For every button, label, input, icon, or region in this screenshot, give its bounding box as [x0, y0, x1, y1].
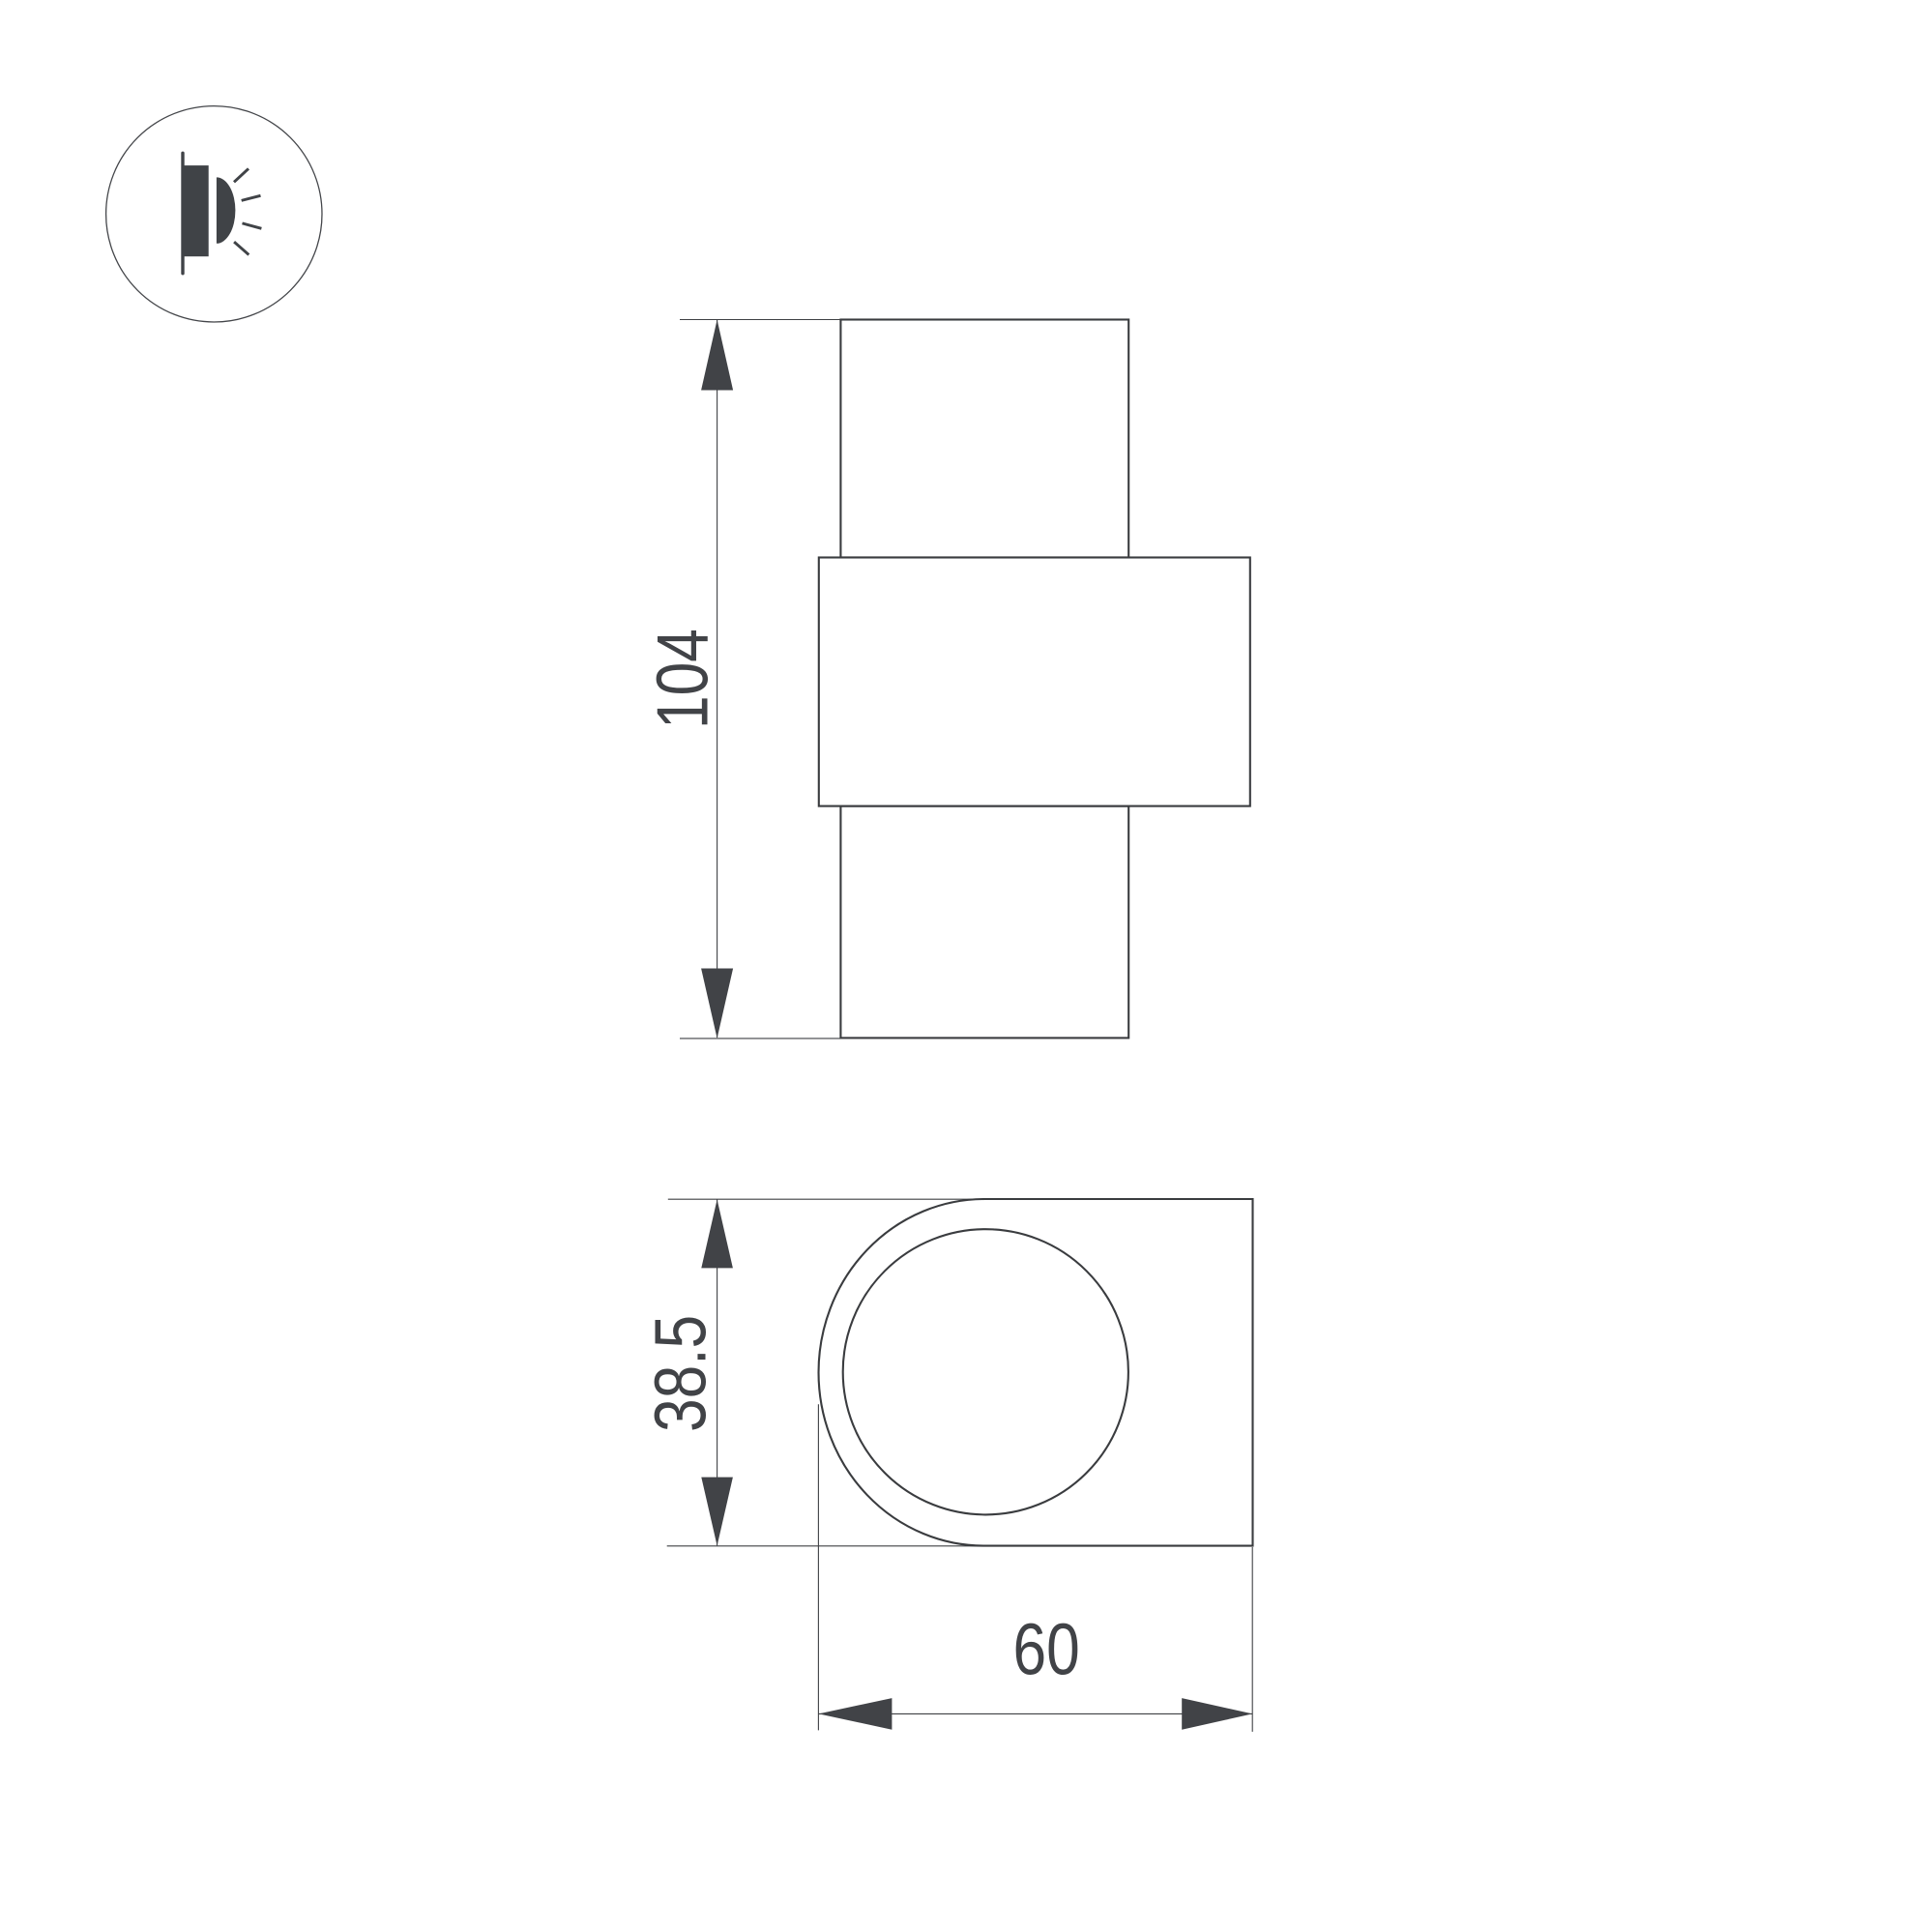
svg-text:38.5: 38.5 [640, 1315, 721, 1432]
svg-text:60: 60 [1013, 1609, 1080, 1690]
svg-text:104: 104 [642, 629, 723, 729]
